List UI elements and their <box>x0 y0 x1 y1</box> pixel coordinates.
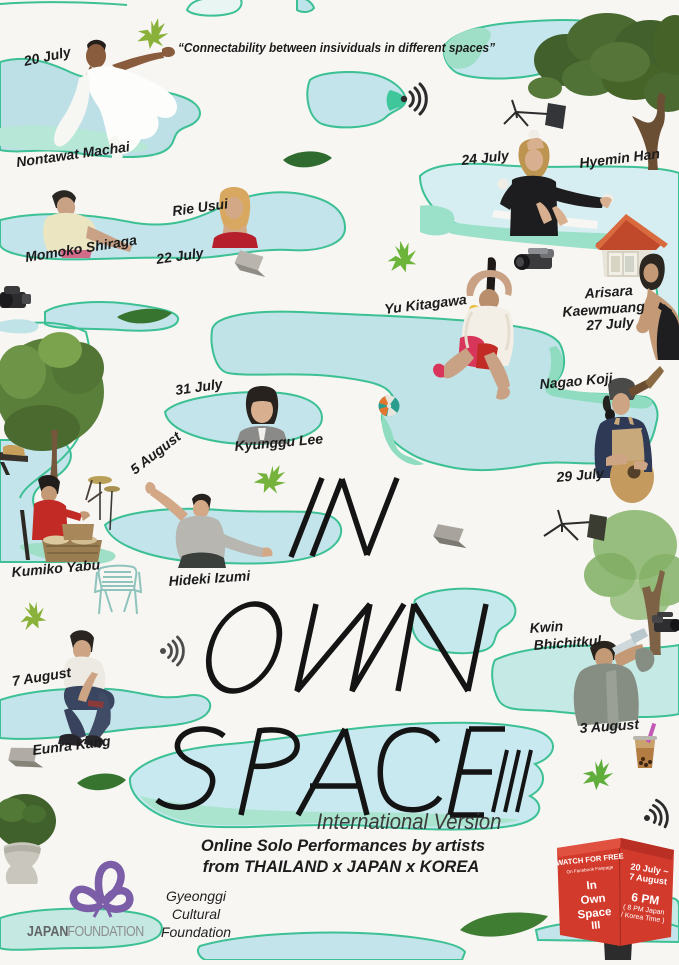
svg-text:Foundation: Foundation <box>161 924 231 940</box>
svg-text:“Connectability between insivi: “Connectability between insividuals in d… <box>178 40 496 55</box>
svg-text:Cultural: Cultural <box>172 906 221 922</box>
svg-text:In: In <box>586 879 597 892</box>
svg-text:JAPAN: JAPAN <box>27 923 68 939</box>
svg-text:Gyeonggi: Gyeonggi <box>166 888 227 904</box>
svg-text:III: III <box>591 919 601 932</box>
svg-text:Kwin: Kwin <box>529 618 563 636</box>
svg-text:from THAILAND x JAPAN x KOREA: from THAILAND x JAPAN x KOREA <box>203 858 480 876</box>
svg-text:Online Solo Performances by ar: Online Solo Performances by artists <box>201 837 485 855</box>
svg-text:International Version: International Version <box>317 810 502 834</box>
svg-text:FOUNDATION: FOUNDATION <box>67 923 143 939</box>
